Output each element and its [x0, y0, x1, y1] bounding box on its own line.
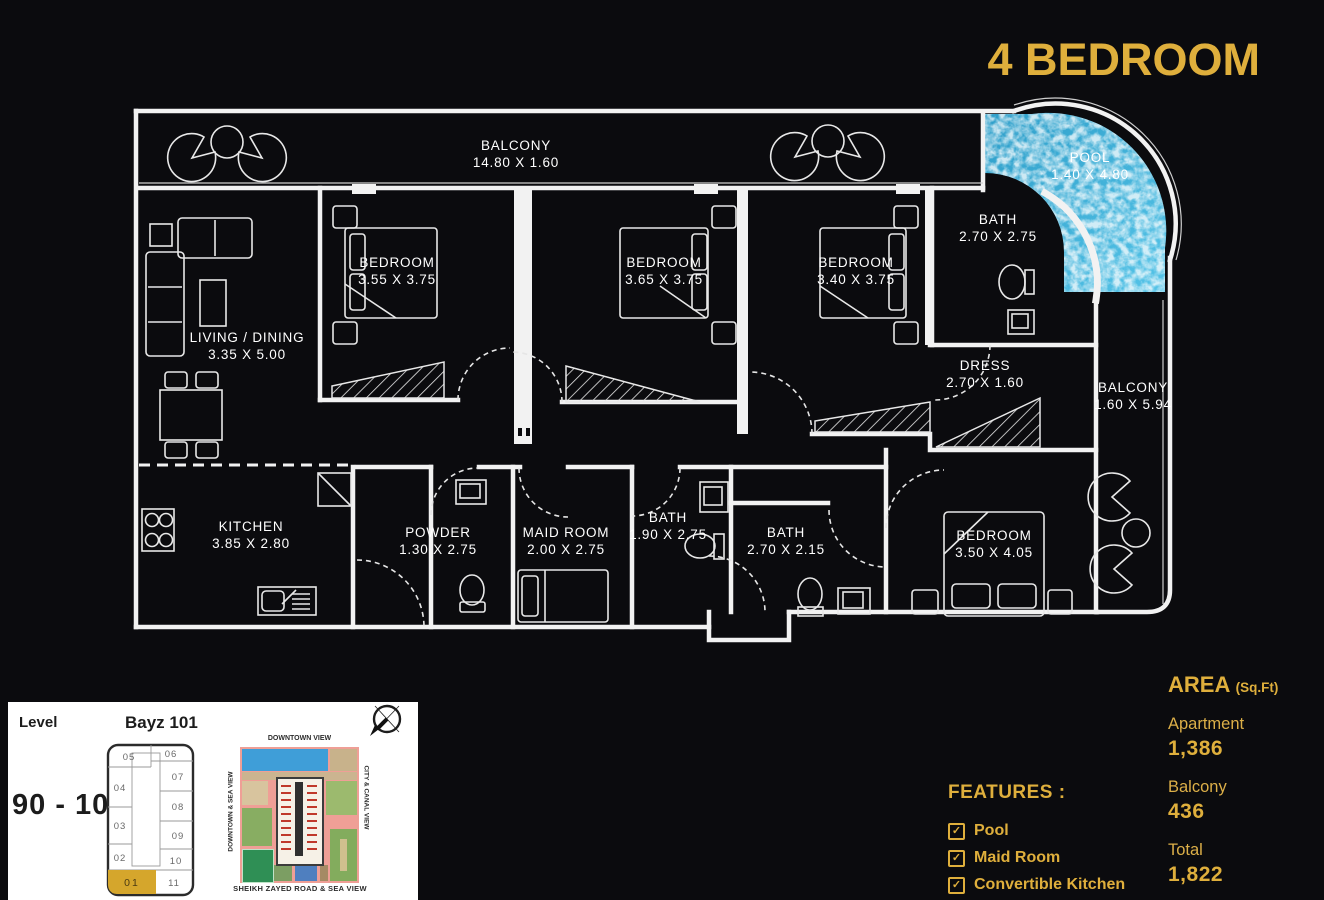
room-label: BEDROOM — [359, 255, 434, 270]
area-row-value: 1,822 — [1168, 863, 1318, 887]
unit-number: 11 — [168, 878, 180, 889]
room-dims: 1.40 X 4.80 — [1051, 167, 1129, 182]
site-sunbeds — [242, 781, 268, 805]
site-basketball-court — [295, 865, 317, 881]
feature-label: Pool — [974, 822, 1009, 840]
toilet — [460, 575, 485, 612]
unit-stack-diagram: 05 06 07 04 08 03 09 02 10 01 11 — [106, 743, 196, 899]
room-label: DRESS — [960, 358, 1011, 373]
area-row-label: Balcony — [1168, 778, 1318, 797]
single-bed — [518, 570, 608, 622]
site-building — [276, 777, 324, 866]
toilet — [999, 265, 1034, 299]
room-dims: 2.70 X 2.75 — [959, 229, 1037, 244]
area-heading-text: AREA — [1168, 672, 1230, 697]
site-map-label-bottom: SHEIKH ZAYED ROAD & SEA VIEW — [215, 884, 385, 893]
room-dims: 1.90 X 2.75 — [629, 527, 707, 542]
room-label: BATH — [649, 510, 687, 525]
bathroom-sink — [700, 482, 728, 512]
site-deck — [330, 749, 357, 771]
area-row-label: Total — [1168, 841, 1318, 860]
feature-item-pool: ✓ Pool — [948, 822, 1125, 840]
site-tennis-court — [242, 849, 274, 883]
wardrobe-hatches — [332, 362, 1040, 447]
unit-number: 08 — [172, 802, 185, 813]
site-map-label-right: CITY & CANAL VIEW — [363, 743, 370, 853]
site-pergola — [242, 808, 272, 846]
room-label: BEDROOM — [818, 255, 893, 270]
bathroom-sink — [1008, 310, 1034, 334]
room-label: BALCONY — [1098, 380, 1168, 395]
site-building-core — [295, 782, 303, 856]
site-map-label-left: DOWNTOWN & SEA VIEW — [228, 757, 235, 867]
checkbox-checked-icon: ✓ — [948, 850, 965, 867]
area-section: AREA (Sq.Ft) Apartment 1,386 Balcony 436… — [1168, 672, 1318, 887]
room-label: BALCONY — [481, 138, 551, 153]
features-section: FEATURES : ✓ Pool ✓ Maid Room ✓ Converti… — [948, 782, 1125, 894]
room-label: BATH — [979, 212, 1017, 227]
unit-number: 10 — [170, 856, 183, 867]
room-label: MAID ROOM — [523, 525, 610, 540]
room-dims: 1.30 X 2.75 — [399, 542, 477, 557]
compass-icon — [364, 699, 410, 745]
wall-slabs — [352, 184, 934, 444]
features-heading: FEATURES : — [948, 782, 1125, 804]
stove — [142, 509, 174, 551]
room-dims: 1.60 X 5.94 — [1094, 397, 1172, 412]
fridge — [318, 473, 351, 506]
area-unit-suffix: (Sq.Ft) — [1236, 680, 1279, 695]
north-arrow — [377, 719, 387, 729]
unit-number: 09 — [172, 831, 185, 842]
room-dims: 3.65 X 3.75 — [625, 272, 703, 287]
unit-number: 03 — [114, 821, 127, 832]
room-dims: 2.70 X 1.60 — [946, 375, 1024, 390]
area-heading: AREA (Sq.Ft) — [1168, 672, 1318, 698]
unit-number: 05 — [123, 752, 136, 763]
door-track — [526, 428, 530, 436]
feature-label: Convertible Kitchen — [974, 876, 1125, 894]
unit-number: 04 — [114, 783, 127, 794]
room-label: BEDROOM — [626, 255, 701, 270]
site-playground — [326, 781, 357, 815]
building-name: Bayz 101 — [125, 713, 198, 733]
site-pool — [242, 749, 328, 771]
room-dims: 3.40 X 3.75 — [817, 272, 895, 287]
room-label: KITCHEN — [219, 519, 284, 534]
unit-number-highlighted: 01 — [124, 877, 140, 889]
room-dims: 3.85 X 2.80 — [212, 536, 290, 551]
door-track — [518, 428, 522, 436]
room-label: POOL — [1070, 150, 1111, 165]
dining-table — [160, 372, 222, 458]
room-label: POWDER — [405, 525, 471, 540]
brochure-page: 4 BEDROOM — [0, 0, 1324, 900]
room-labels: BALCONY 14.80 X 1.60 POOL 1.40 X 4.80 BA… — [190, 138, 1172, 560]
site-court — [274, 865, 292, 881]
area-row-label: Apartment — [1168, 715, 1318, 734]
balcony-chairs — [771, 125, 885, 181]
level-label: Level — [19, 714, 57, 731]
floor-plan: BALCONY 14.80 X 1.60 POOL 1.40 X 4.80 BA… — [0, 0, 1324, 695]
kitchen-sink — [258, 587, 316, 615]
bathroom-sink — [456, 480, 486, 504]
site-building-units — [307, 785, 317, 851]
area-row-value: 436 — [1168, 800, 1318, 824]
room-dims: 3.50 X 4.05 — [955, 545, 1033, 560]
coffee-table — [200, 280, 226, 326]
room-dims: 2.00 X 2.75 — [527, 542, 605, 557]
site-map — [240, 747, 359, 883]
unit-number: 02 — [114, 853, 127, 864]
site-play-square — [320, 865, 328, 881]
feature-label: Maid Room — [974, 849, 1060, 867]
unit-number: 07 — [172, 772, 185, 783]
room-dims: 14.80 X 1.60 — [473, 155, 559, 170]
room-label: LIVING / DINING — [190, 330, 305, 345]
door-arcs — [357, 345, 990, 627]
site-cricket-pitch — [340, 839, 347, 871]
room-dims: 3.35 X 5.00 — [208, 347, 286, 362]
feature-item-convertible-kitchen: ✓ Convertible Kitchen — [948, 876, 1125, 894]
room-dims: 2.70 X 2.15 — [747, 542, 825, 557]
area-row-value: 1,386 — [1168, 737, 1318, 761]
balcony-chairs — [168, 126, 287, 182]
room-label: BEDROOM — [956, 528, 1031, 543]
site-building-units — [281, 785, 291, 851]
checkbox-checked-icon: ✓ — [948, 823, 965, 840]
room-label: BATH — [767, 525, 805, 540]
unit-number: 06 — [165, 749, 178, 760]
feature-item-maid-room: ✓ Maid Room — [948, 849, 1125, 867]
room-dims: 3.55 X 3.75 — [358, 272, 436, 287]
site-map-label-top: DOWNTOWN VIEW — [240, 735, 359, 742]
checkbox-checked-icon: ✓ — [948, 877, 965, 894]
